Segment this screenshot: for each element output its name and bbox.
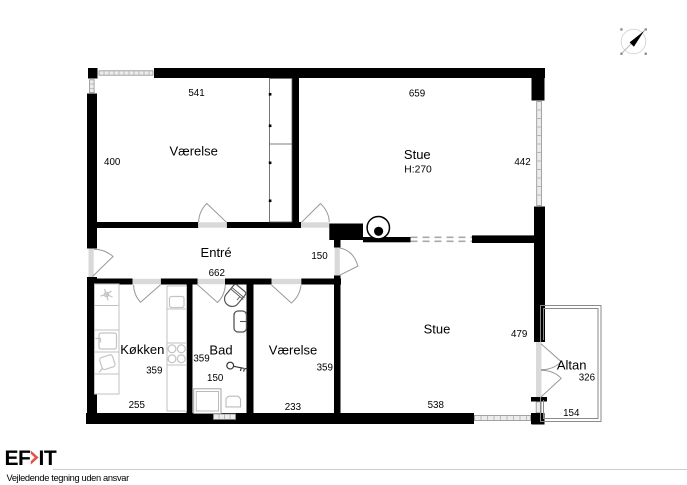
svg-text:Værelse: Værelse [269, 343, 317, 358]
svg-text:Stue: Stue [424, 321, 451, 336]
svg-text:Bad: Bad [209, 342, 232, 357]
svg-text:Vejledende tegning uden ansvar: Vejledende tegning uden ansvar [7, 473, 130, 483]
svg-text:479: 479 [511, 329, 527, 340]
svg-text:154: 154 [563, 408, 580, 419]
svg-text:150: 150 [311, 251, 328, 262]
svg-text:H:270: H:270 [404, 165, 432, 176]
svg-text:Køkken: Køkken [120, 342, 164, 357]
svg-text:659: 659 [409, 88, 425, 99]
svg-text:150: 150 [207, 373, 224, 384]
svg-text:IT: IT [39, 447, 57, 470]
svg-text:326: 326 [579, 373, 596, 384]
svg-text:359: 359 [146, 366, 162, 377]
svg-text:233: 233 [285, 402, 302, 413]
svg-text:Altan: Altan [557, 357, 587, 372]
svg-text:400: 400 [104, 157, 121, 168]
svg-text:359: 359 [193, 354, 209, 365]
svg-text:662: 662 [209, 268, 225, 279]
svg-text:359: 359 [317, 363, 333, 374]
svg-text:255: 255 [129, 400, 146, 411]
svg-text:EF: EF [5, 447, 32, 470]
svg-text:442: 442 [514, 157, 530, 168]
svg-text:Stue: Stue [404, 147, 431, 162]
svg-text:Værelse: Værelse [169, 144, 217, 159]
svg-text:541: 541 [188, 88, 204, 99]
svg-text:538: 538 [428, 400, 445, 411]
svg-text:Entré: Entré [201, 245, 232, 260]
